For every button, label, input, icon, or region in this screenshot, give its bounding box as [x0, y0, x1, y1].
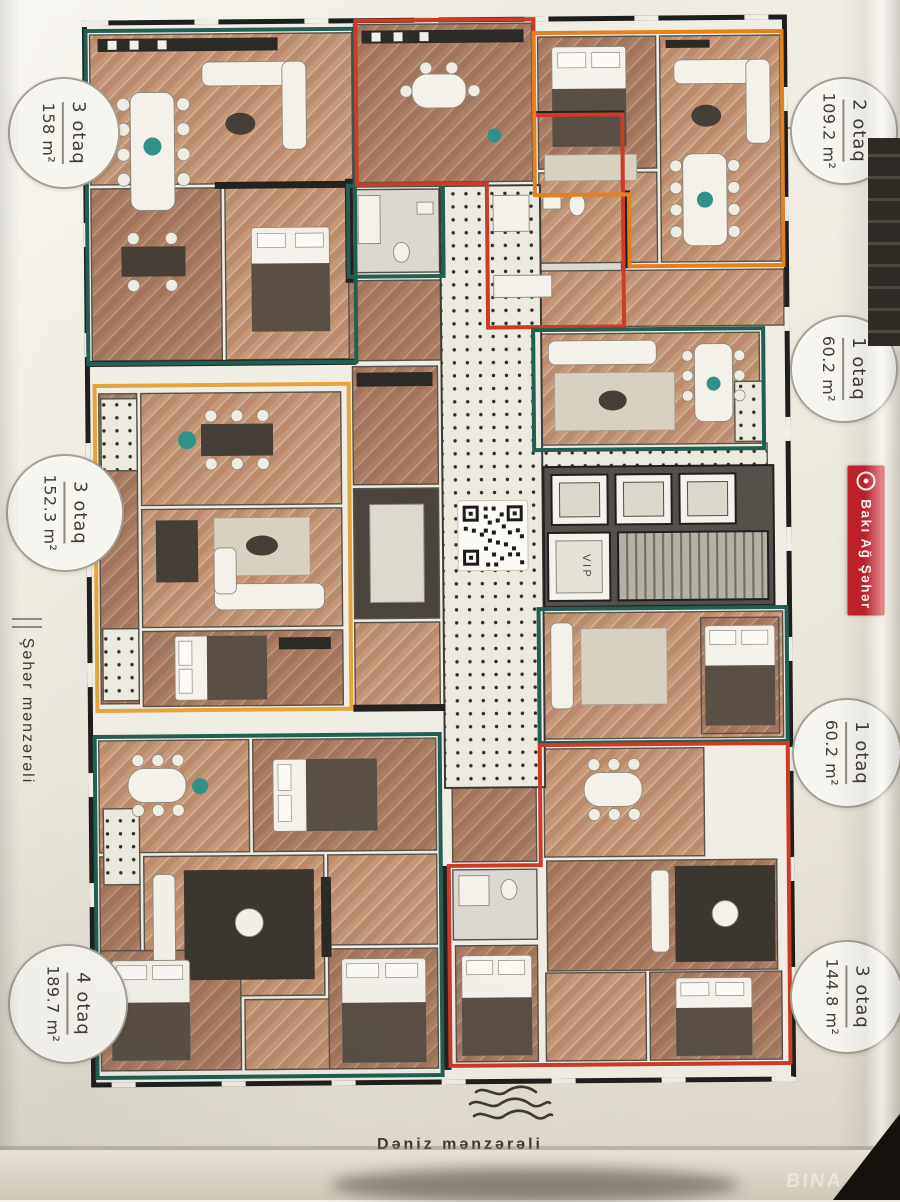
- vip-elevator: VIP: [548, 533, 611, 602]
- waves-icon: [462, 1084, 554, 1130]
- table-shadow: [330, 1168, 740, 1202]
- vip-label: VIP: [580, 554, 592, 579]
- brochure-photo: { "badges": [ {"rooms": "3 otaq", "area"…: [0, 0, 900, 1200]
- badge-rooms: 3 otaq: [68, 101, 89, 165]
- badge-rooms: 4 otaq: [72, 972, 93, 1036]
- floor-plan: VIP: [81, 3, 796, 1093]
- left-edge-shadow: [0, 0, 20, 1200]
- elevator-core: VIP: [543, 465, 774, 607]
- stairs: [618, 531, 769, 600]
- unit-badge: 4 otaq189.7 m²: [8, 944, 128, 1064]
- badge-divider: [62, 102, 64, 164]
- qr-code: [458, 500, 529, 571]
- badge-rooms: 3 otaq: [69, 481, 90, 545]
- badge-divider: [66, 973, 68, 1035]
- badge-divider: [63, 482, 65, 544]
- elevator-cars: [551, 473, 735, 525]
- badge-area: 158 m²: [39, 103, 58, 164]
- badge-area: 152.3 m²: [40, 475, 59, 552]
- adjacent-page-strip: [868, 138, 900, 346]
- badge-area: 189.7 m²: [43, 966, 62, 1043]
- unit-badge: 3 otaq152.3 m²: [6, 454, 124, 572]
- unit-badge: 3 otaq158 m²: [8, 77, 120, 189]
